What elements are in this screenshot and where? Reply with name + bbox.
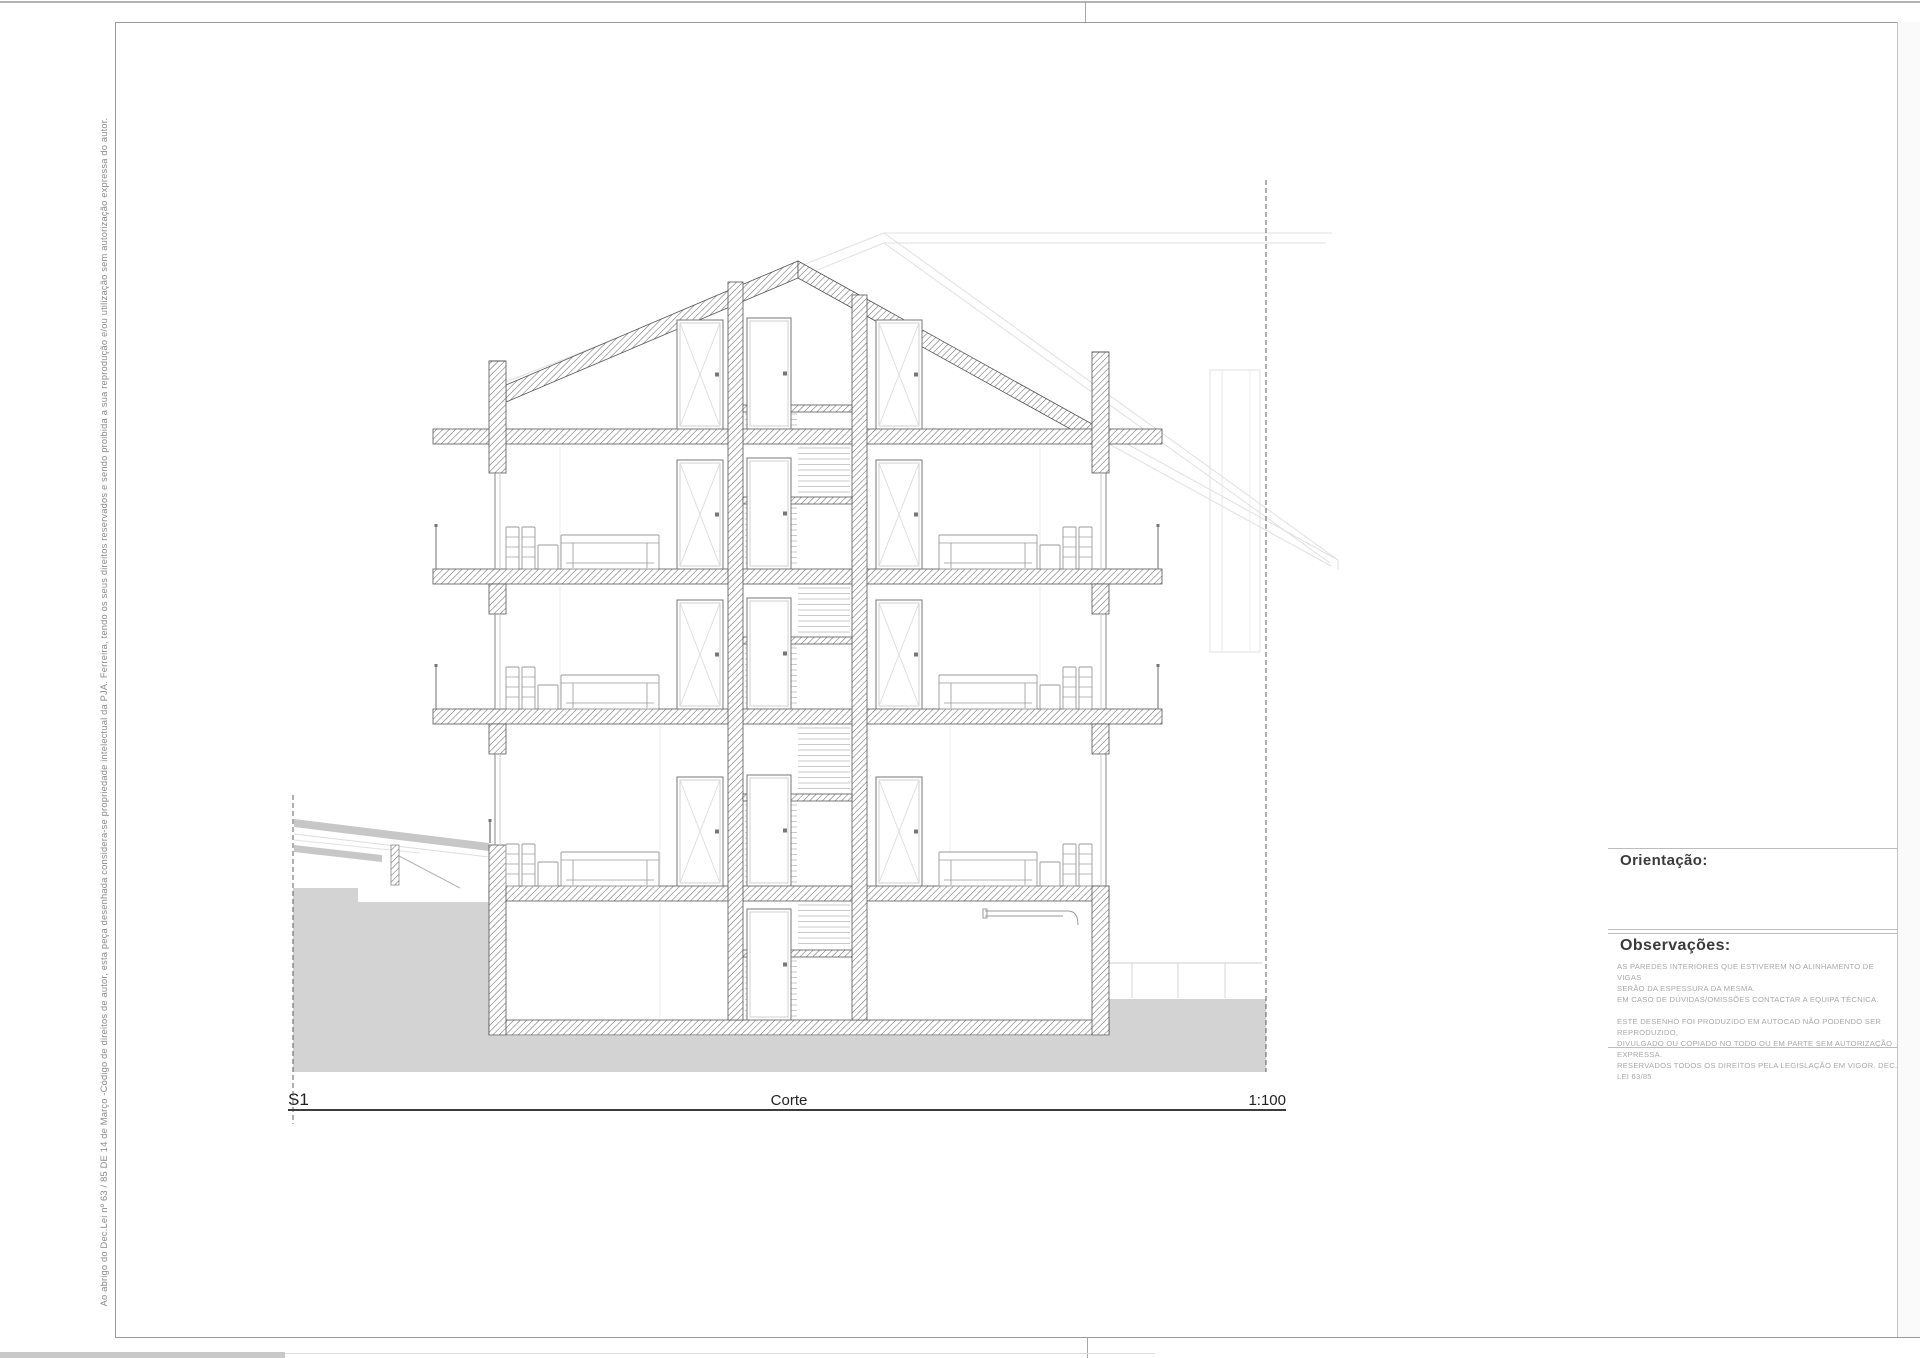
observation-note: AS PAREDES INTERIORES QUE ESTIVEREM NO A… [1617,961,1899,994]
building-section-drawing [0,0,1920,1358]
title-underline [288,1109,1286,1111]
observation-note: ESTE DESENHO FOI PRODUZIDO EM AUTOCAD NÃ… [1617,1016,1899,1082]
garage-door-track [983,909,1078,925]
right-low-wall-elevation [1109,963,1262,998]
floor-slabs [433,429,1162,1035]
orientation-heading: Orientação: [1620,852,1708,869]
section-mark-label: S1 [288,1090,309,1110]
titleblock-line-bottom [1608,1047,1897,1048]
titleblock-line-mid2 [1608,933,1897,934]
drawing-sheet: Ao abrigo do Dec.Lei nº 63 / 85 DE 14 de… [0,0,1920,1358]
left-access-ramp [294,819,492,888]
roof-sectioned-slopes [506,261,1092,441]
titleblock-line-mid1 [1608,929,1897,930]
titleblock-line-top [1608,848,1897,849]
drawing-title: Corte [689,1092,889,1109]
observations-heading: Observações: [1620,937,1731,955]
drawing-scale: 1:100 [1206,1092,1286,1109]
generated-detail [435,318,1160,1020]
observation-note: EM CASO DE DÚVIDAS/OMISSÕES CONTACTAR A … [1617,994,1899,1005]
